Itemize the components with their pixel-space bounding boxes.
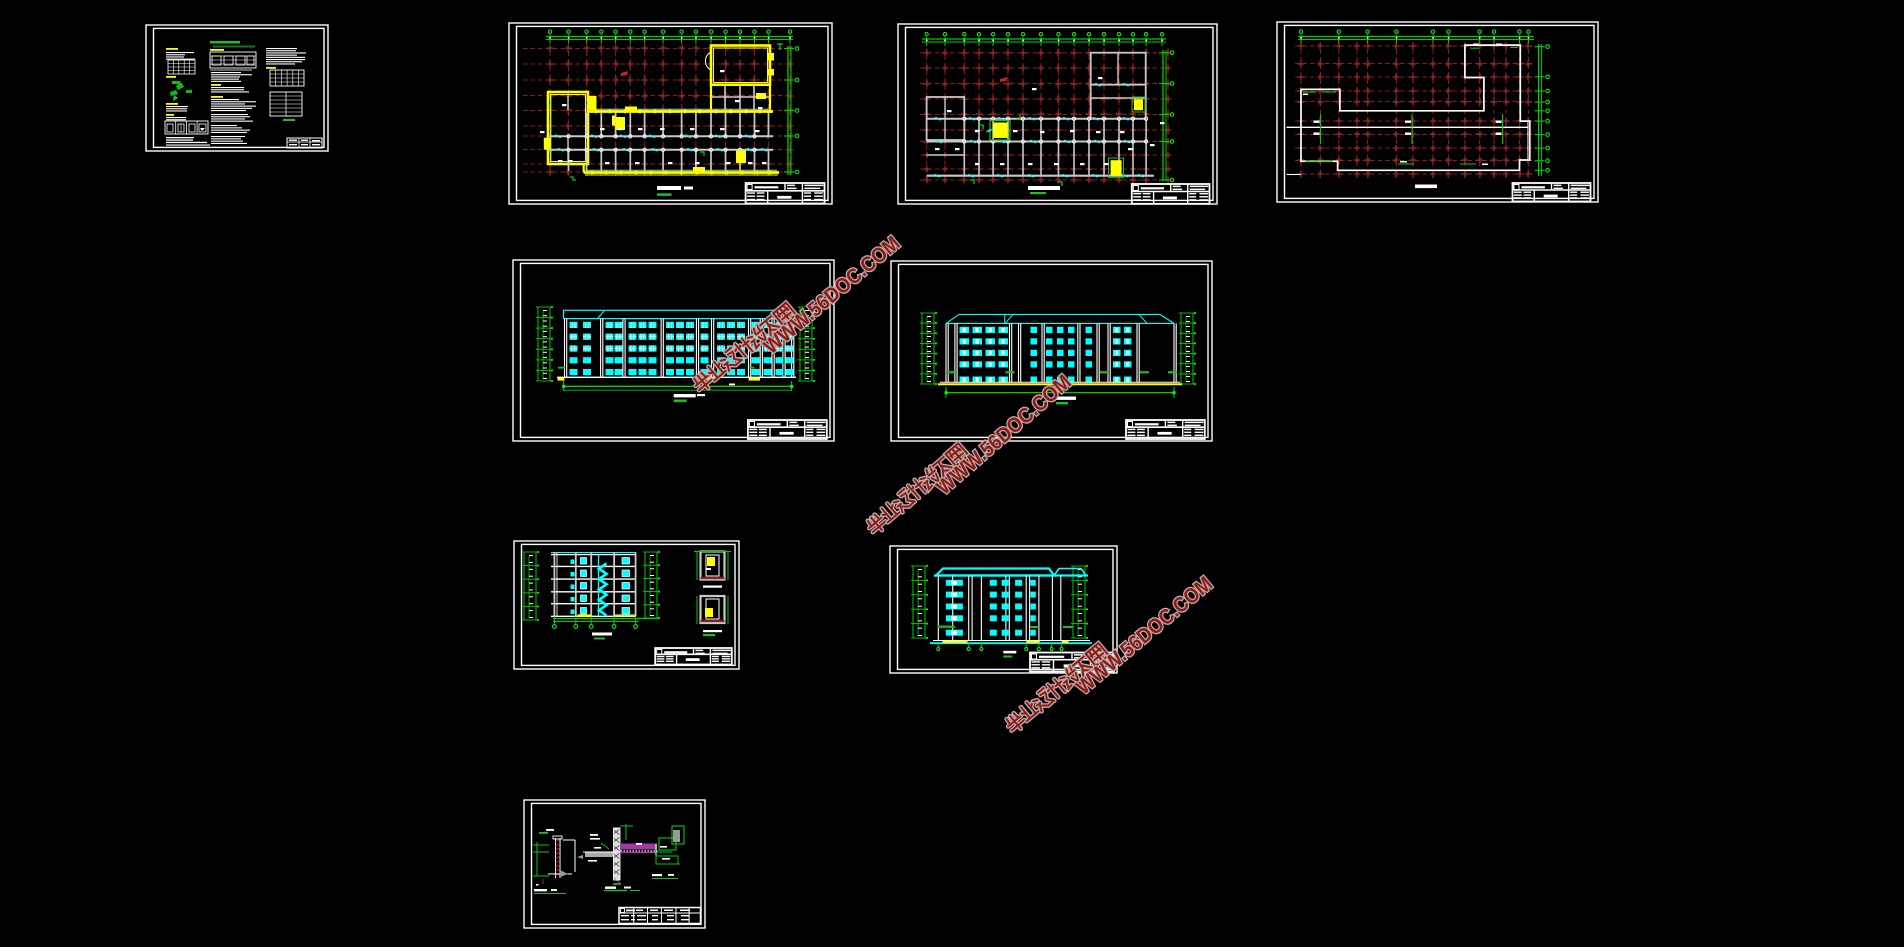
- svg-text:WWW.56DOC.COM: WWW.56DOC.COM: [1072, 572, 1217, 699]
- svg-text:WWW.56DOC.COM: WWW.56DOC.COM: [760, 232, 905, 359]
- svg-text:WWW.56DOC.COM: WWW.56DOC.COM: [932, 371, 1075, 500]
